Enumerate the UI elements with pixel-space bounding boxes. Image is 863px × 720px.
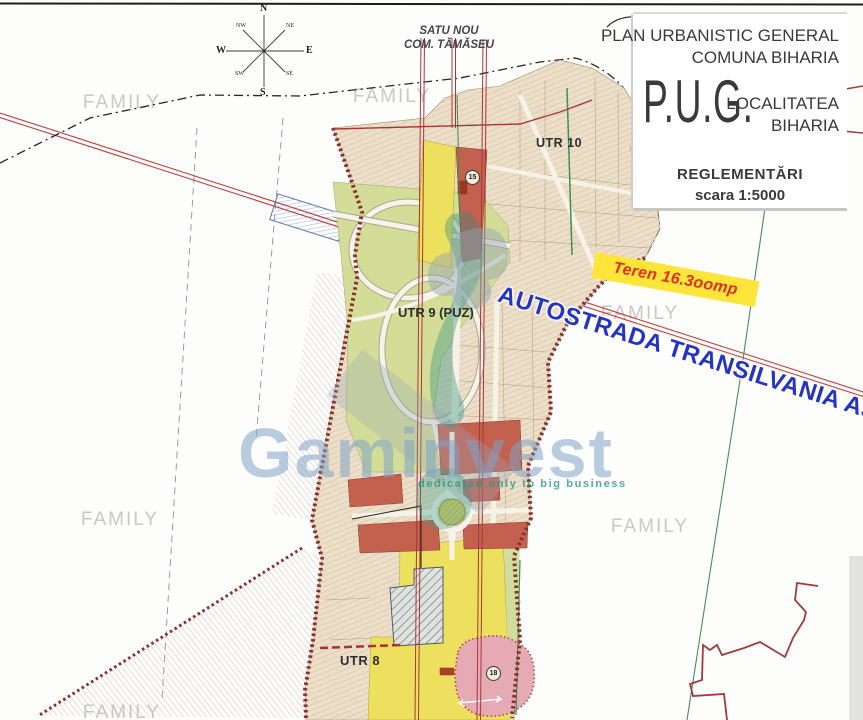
locality-line2: BIHARIA — [771, 116, 839, 136]
zone-marker-15: 15 — [465, 170, 480, 185]
compass-sw: SW — [235, 71, 244, 77]
compass-rays — [216, 5, 312, 97]
compass-nw: NW — [236, 23, 246, 29]
neighbor-commune-line2: COM. TĂMĂSEU — [384, 39, 514, 53]
compass-e: E — [306, 45, 313, 56]
hatched-wedge-bottom-left — [40, 548, 322, 718]
compass-rose: N S W E NW NE SW SE — [216, 5, 312, 97]
scanned-map-page: FAMILY FAMILY FAMILY FAMILY FAMILY FAMIL… — [0, 0, 863, 720]
brand-tagline: dedicated only to big business — [418, 478, 627, 490]
scan-shadow-right — [849, 556, 863, 720]
title-block: PLAN URBANISTIC GENERAL COMUNA BIHARIA P… — [633, 14, 847, 208]
neighbor-commune-line1: SATU NOU — [384, 25, 514, 39]
neighbor-commune-label: SATU NOU COM. TĂMĂSEU — [384, 25, 514, 52]
scan-edge-line — [0, 4, 863, 5]
plan-title-line1: PLAN URBANISTIC GENERAL — [601, 26, 839, 46]
compass-s: S — [260, 87, 266, 98]
label-utr8: UTR 8 — [340, 653, 380, 668]
plan-title-line2: COMUNA BIHARIA — [692, 48, 839, 68]
label-utr10: UTR 10 — [536, 136, 582, 150]
zone-marker-18: 18 — [486, 666, 501, 681]
compass-n: N — [260, 3, 267, 14]
locality-line1: LOCALITATEA — [726, 94, 839, 114]
label-utr9: UTR 9 (PUZ) — [398, 305, 474, 320]
plan-subtitle: REGLEMENTĂRI — [633, 166, 847, 183]
compass-ne: NE — [286, 23, 294, 29]
plan-scale: scara 1:5000 — [633, 187, 847, 204]
compass-w: W — [216, 45, 226, 56]
compass-se: SE — [286, 71, 293, 77]
